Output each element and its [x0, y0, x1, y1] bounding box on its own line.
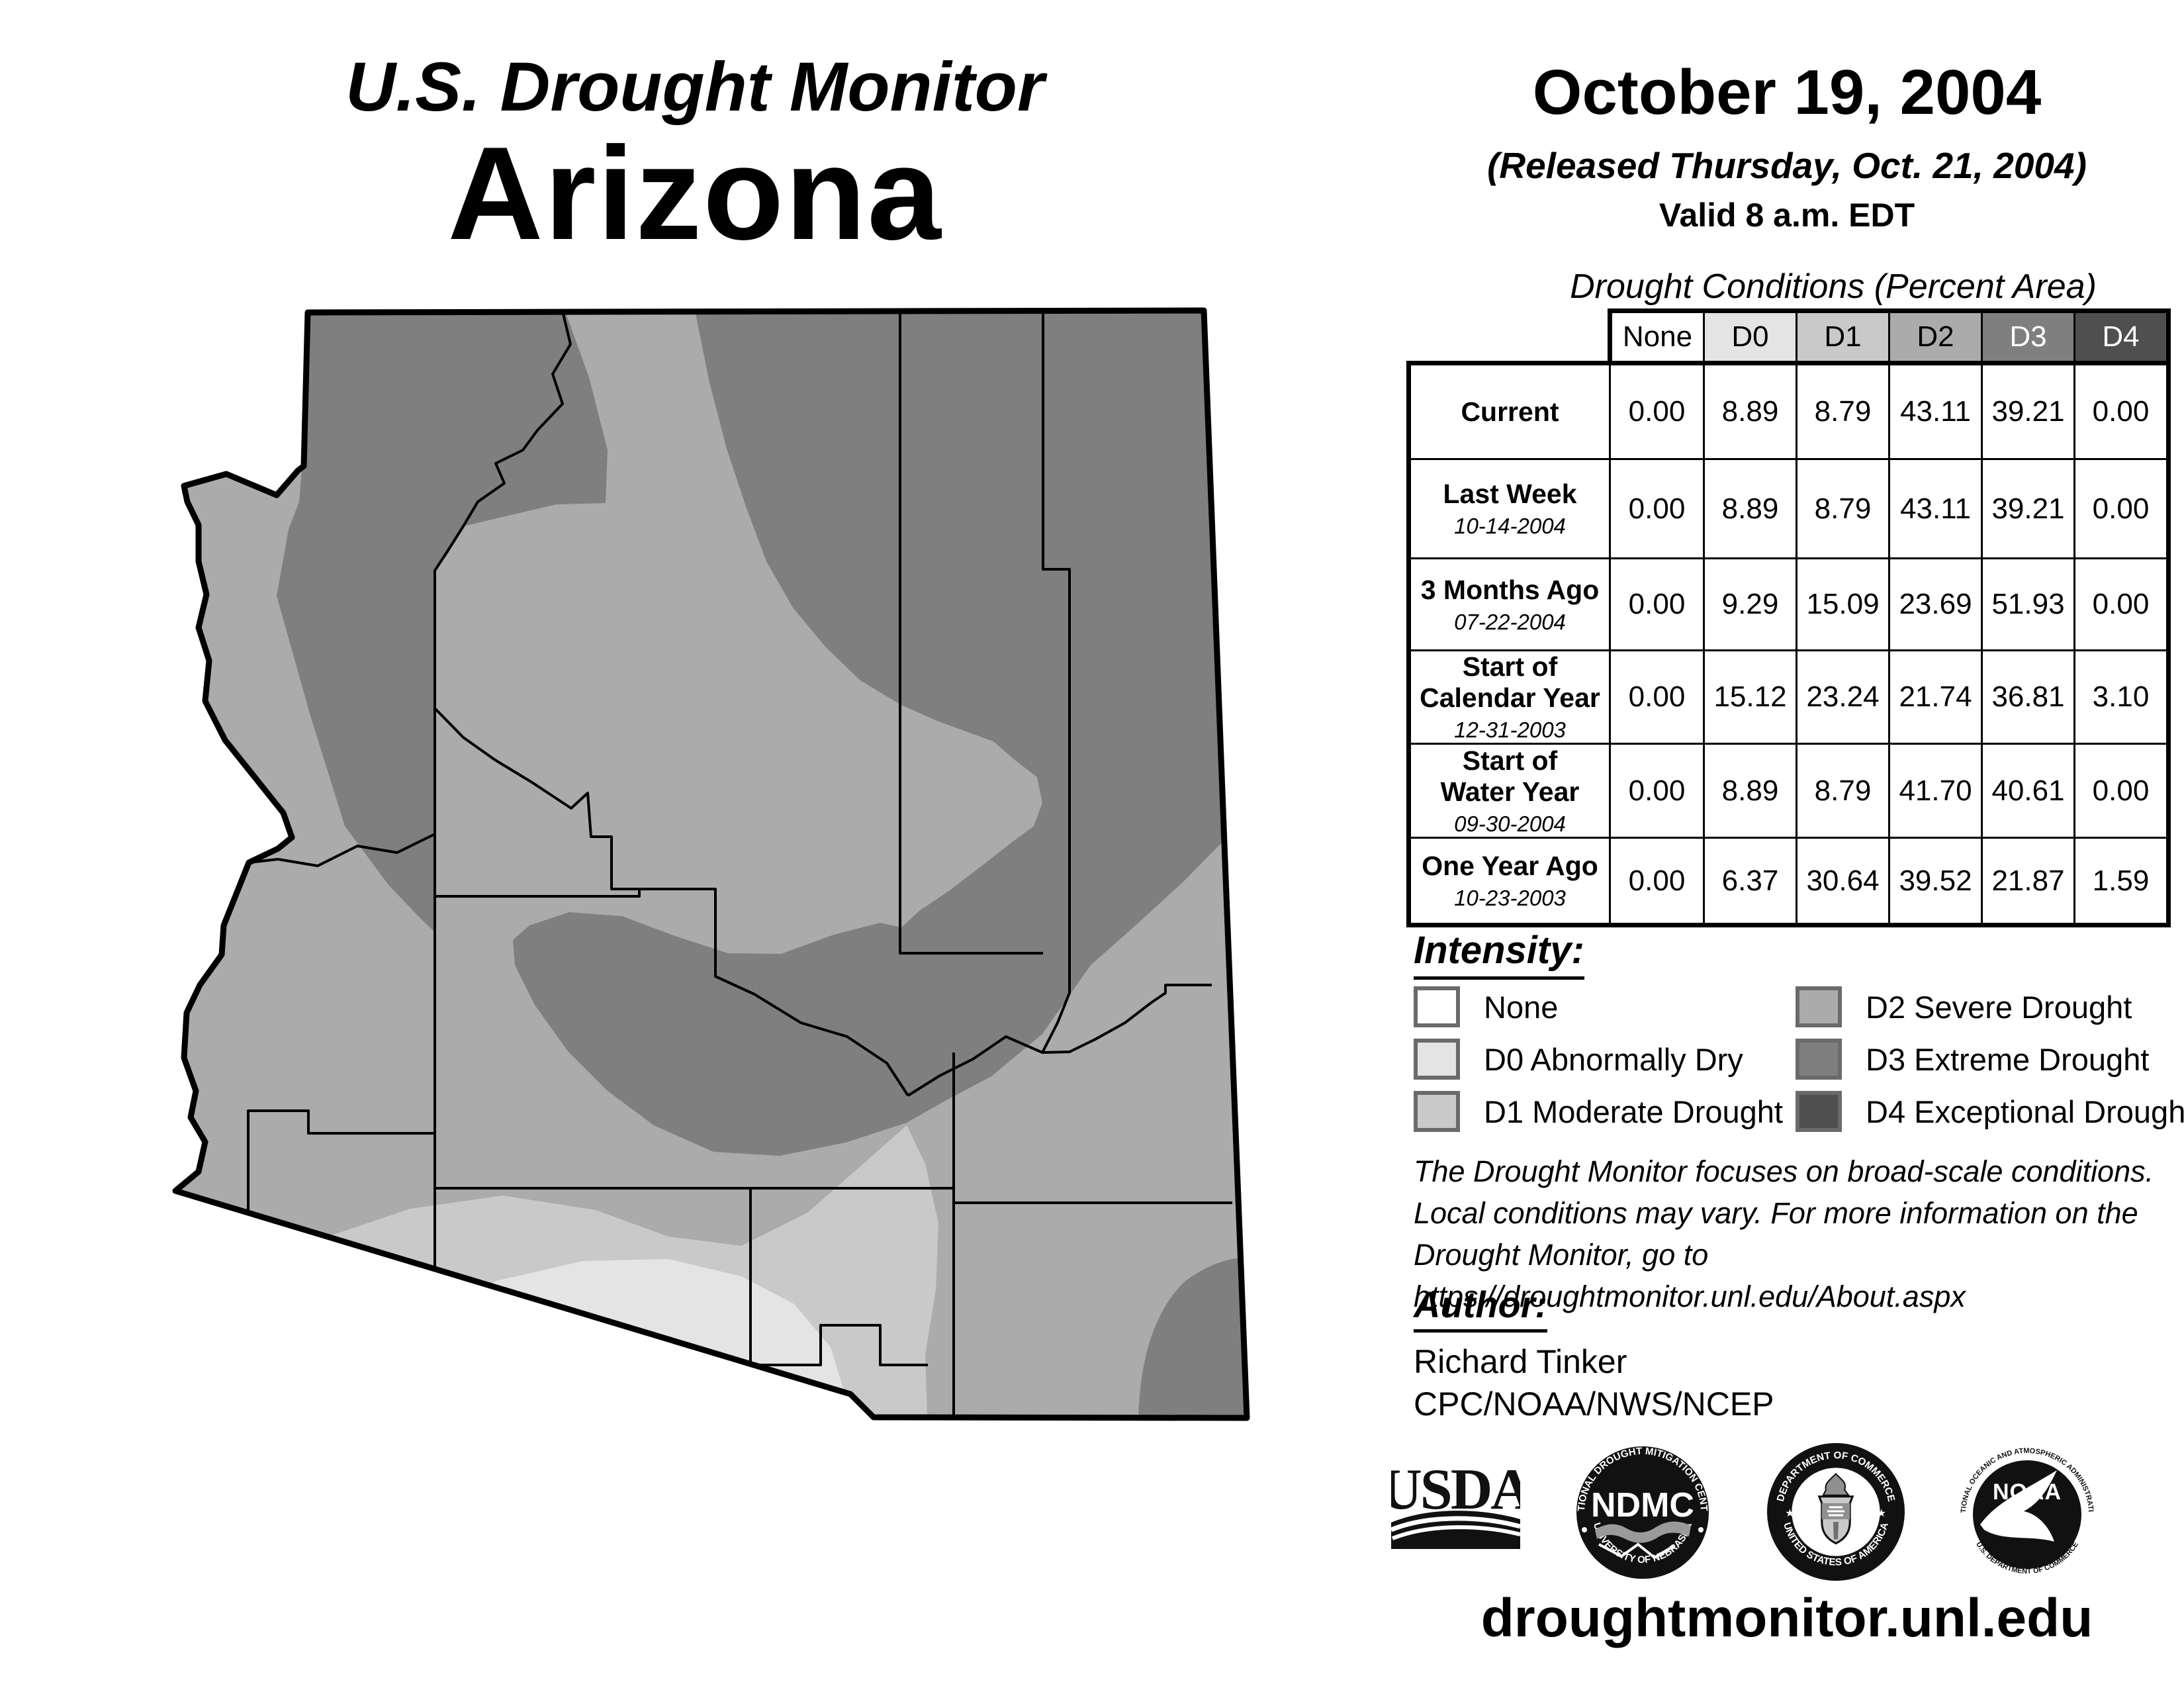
table-cell: 0.00	[1610, 744, 1704, 838]
legend-item-d2: D2 Severe Drought	[1796, 986, 2184, 1027]
table-title: Drought Conditions (Percent Area)	[1509, 267, 2158, 306]
noaa-logo: NATIONAL OCEANIC AND ATMOSPHERIC ADMINIS…	[1958, 1445, 2097, 1584]
table-cell: 8.89	[1704, 459, 1797, 559]
legend-swatch-d3	[1796, 1039, 1842, 1080]
table-cell: 39.21	[1982, 459, 2075, 559]
page-title: U.S. Drought Monitor	[199, 48, 1191, 127]
table-corner-spacer	[1409, 311, 1610, 363]
author-name: Richard Tinker	[1414, 1342, 1627, 1381]
table-row: One Year Ago10-23-20030.006.3730.6439.52…	[1409, 838, 2169, 925]
valid-time: Valid 8 a.m. EDT	[1423, 196, 2151, 234]
legend-label: D1 Moderate Drought	[1484, 1094, 1783, 1130]
legend-swatch-none	[1414, 986, 1460, 1027]
svg-text:★: ★	[1877, 1507, 1886, 1519]
table-cell: 1.59	[2075, 838, 2169, 925]
table-row: 3 Months Ago07-22-20040.009.2915.0923.69…	[1409, 559, 2169, 651]
table-cell: 30.64	[1797, 838, 1889, 925]
legend-swatch-d2	[1796, 986, 1842, 1027]
svg-text:NOAA: NOAA	[1993, 1479, 2062, 1505]
row-label: Start of Water Year09-30-2004	[1409, 744, 1610, 838]
table-cell: 36.81	[1982, 651, 2075, 744]
row-label: Start of Calendar Year12-31-2003	[1409, 651, 1610, 744]
table-cell: 0.00	[2075, 459, 2169, 559]
table-cell: 0.00	[1610, 459, 1704, 559]
state-name: Arizona	[199, 118, 1191, 270]
report-date: October 19, 2004	[1423, 56, 2151, 129]
table-cell: 0.00	[2075, 559, 2169, 651]
legend-swatch-d1	[1414, 1091, 1460, 1132]
table-cell: 0.00	[1610, 838, 1704, 925]
table-cell: 0.00	[1610, 559, 1704, 651]
table-cell: 43.11	[1889, 363, 1982, 459]
legend-label: D4 Exceptional Drought	[1866, 1094, 2184, 1130]
table-cell: 8.89	[1704, 744, 1797, 838]
table-cell: 40.61	[1982, 744, 2075, 838]
usda-logo: USDA	[1391, 1460, 1520, 1549]
row-label: Current	[1409, 363, 1610, 459]
table-cell: 39.21	[1982, 363, 2075, 459]
column-header-d3: D3	[1982, 311, 2075, 363]
table-cell: 0.00	[1610, 651, 1704, 744]
legend-item-d1: D1 Moderate Drought	[1414, 1091, 1783, 1132]
column-header-none: None	[1610, 311, 1704, 363]
disclaimer-line: The Drought Monitor focuses on broad-sca…	[1414, 1150, 2184, 1192]
table-cell: 23.24	[1797, 651, 1889, 744]
intensity-legend-left: NoneD0 Abnormally DryD1 Moderate Drought	[1414, 986, 1783, 1132]
legend-label: D2 Severe Drought	[1866, 989, 2132, 1025]
author-heading: Author:	[1414, 1283, 1547, 1333]
department-of-commerce-seal: DEPARTMENT OF COMMERCE UNITED STATES OF …	[1766, 1442, 1906, 1582]
table-cell: 8.79	[1797, 363, 1889, 459]
legend-item-d0: D0 Abnormally Dry	[1414, 1039, 1783, 1080]
table-cell: 39.52	[1889, 838, 1982, 925]
table-cell: 9.29	[1704, 559, 1797, 651]
table-row: Last Week10-14-20040.008.898.7943.1139.2…	[1409, 459, 2169, 559]
column-header-d1: D1	[1797, 311, 1889, 363]
table-cell: 43.11	[1889, 459, 1982, 559]
website-url: droughtmonitor.unl.edu	[1423, 1587, 2151, 1650]
table-row: Current0.008.898.7943.1139.210.00	[1409, 363, 2169, 459]
column-header-d2: D2	[1889, 311, 1982, 363]
table-row: Start of Calendar Year12-31-20030.0015.1…	[1409, 651, 2169, 744]
svg-text:★: ★	[1785, 1507, 1794, 1519]
table-cell: 8.89	[1704, 363, 1797, 459]
legend-item-d4: D4 Exceptional Drought	[1796, 1091, 2184, 1132]
intensity-legend-right: D2 Severe DroughtD3 Extreme DroughtD4 Ex…	[1796, 986, 2184, 1132]
legend-swatch-d4	[1796, 1091, 1842, 1132]
legend-swatch-d0	[1414, 1039, 1460, 1080]
table-cell: 23.69	[1889, 559, 1982, 651]
table-cell: 0.00	[2075, 744, 2169, 838]
table-row: Start of Water Year09-30-20040.008.898.7…	[1409, 744, 2169, 838]
table-cell: 15.12	[1704, 651, 1797, 744]
legend-label: None	[1484, 989, 1558, 1025]
row-label: One Year Ago10-23-2003	[1409, 838, 1610, 925]
table-cell: 6.37	[1704, 838, 1797, 925]
drought-conditions-table: NoneD0D1D2D3D4Current0.008.898.7943.1139…	[1406, 308, 2171, 927]
table-cell: 0.00	[2075, 363, 2169, 459]
svg-text:NDMC: NDMC	[1591, 1486, 1694, 1524]
table-cell: 21.87	[1982, 838, 2075, 925]
table-cell: 51.93	[1982, 559, 2075, 651]
row-label: Last Week10-14-2004	[1409, 459, 1610, 559]
author-organization: CPC/NOAA/NWS/NCEP	[1414, 1385, 1774, 1423]
legend-label: D3 Extreme Drought	[1866, 1041, 2149, 1078]
table-cell: 8.79	[1797, 459, 1889, 559]
row-label: 3 Months Ago07-22-2004	[1409, 559, 1610, 651]
released-date: (Released Thursday, Oct. 21, 2004)	[1423, 144, 2151, 187]
ndmc-logo: NATIONAL DROUGHT MITIGATION CENTER UNIVE…	[1575, 1445, 1711, 1581]
table-cell: 41.70	[1889, 744, 1982, 838]
table-cell: 3.10	[2075, 651, 2169, 744]
intensity-heading: Intensity:	[1414, 928, 1584, 980]
disclaimer-line: Local conditions may vary. For more info…	[1414, 1192, 2184, 1234]
legend-label: D0 Abnormally Dry	[1484, 1041, 1743, 1078]
table-cell: 15.09	[1797, 559, 1889, 651]
table-cell: 0.00	[1610, 363, 1704, 459]
table-cell: 8.79	[1797, 744, 1889, 838]
table-cell: 21.74	[1889, 651, 1982, 744]
column-header-d0: D0	[1704, 311, 1797, 363]
legend-item-none: None	[1414, 986, 1783, 1027]
legend-item-d3: D3 Extreme Drought	[1796, 1039, 2184, 1080]
column-header-d4: D4	[2075, 311, 2169, 363]
